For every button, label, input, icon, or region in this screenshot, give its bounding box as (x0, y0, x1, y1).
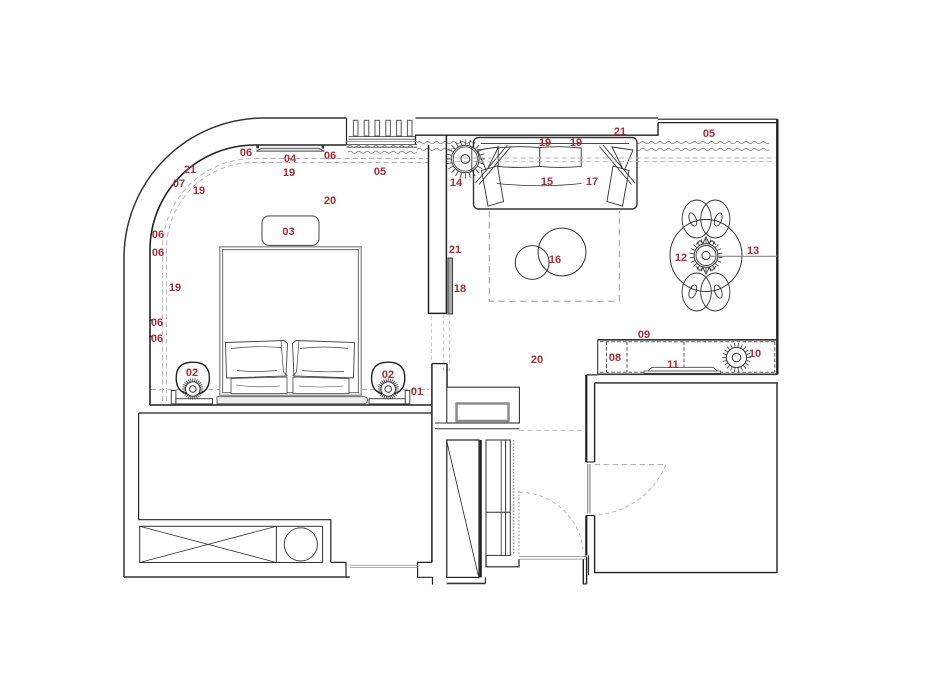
svg-text:19: 19 (169, 282, 181, 294)
svg-text:06: 06 (152, 247, 164, 259)
svg-text:19: 19 (539, 137, 551, 149)
svg-text:11: 11 (667, 359, 679, 371)
svg-text:04: 04 (284, 153, 297, 165)
svg-text:20: 20 (531, 354, 543, 366)
svg-text:20: 20 (324, 195, 336, 207)
svg-text:21: 21 (184, 164, 196, 176)
svg-text:12: 12 (675, 252, 687, 264)
svg-text:05: 05 (703, 128, 715, 140)
svg-text:08: 08 (609, 352, 621, 364)
svg-text:09: 09 (638, 329, 650, 341)
svg-text:19: 19 (570, 137, 582, 149)
svg-text:14: 14 (450, 177, 463, 189)
svg-text:02: 02 (186, 367, 198, 379)
svg-text:07: 07 (173, 178, 185, 190)
svg-text:21: 21 (614, 126, 626, 138)
svg-text:02: 02 (382, 369, 394, 381)
svg-text:18: 18 (454, 283, 466, 295)
svg-text:06: 06 (324, 150, 336, 162)
svg-text:06: 06 (151, 333, 163, 345)
svg-text:06: 06 (152, 229, 164, 241)
svg-text:19: 19 (283, 167, 295, 179)
svg-text:13: 13 (747, 245, 759, 257)
svg-text:16: 16 (549, 254, 561, 266)
svg-text:01: 01 (411, 386, 423, 398)
svg-text:03: 03 (282, 226, 294, 238)
svg-text:06: 06 (240, 147, 252, 159)
svg-text:15: 15 (541, 176, 553, 188)
svg-text:10: 10 (749, 348, 761, 360)
svg-text:21: 21 (449, 244, 461, 256)
svg-text:17: 17 (586, 176, 598, 188)
svg-text:05: 05 (374, 166, 386, 178)
svg-text:19: 19 (193, 185, 205, 197)
svg-text:06: 06 (151, 317, 163, 329)
